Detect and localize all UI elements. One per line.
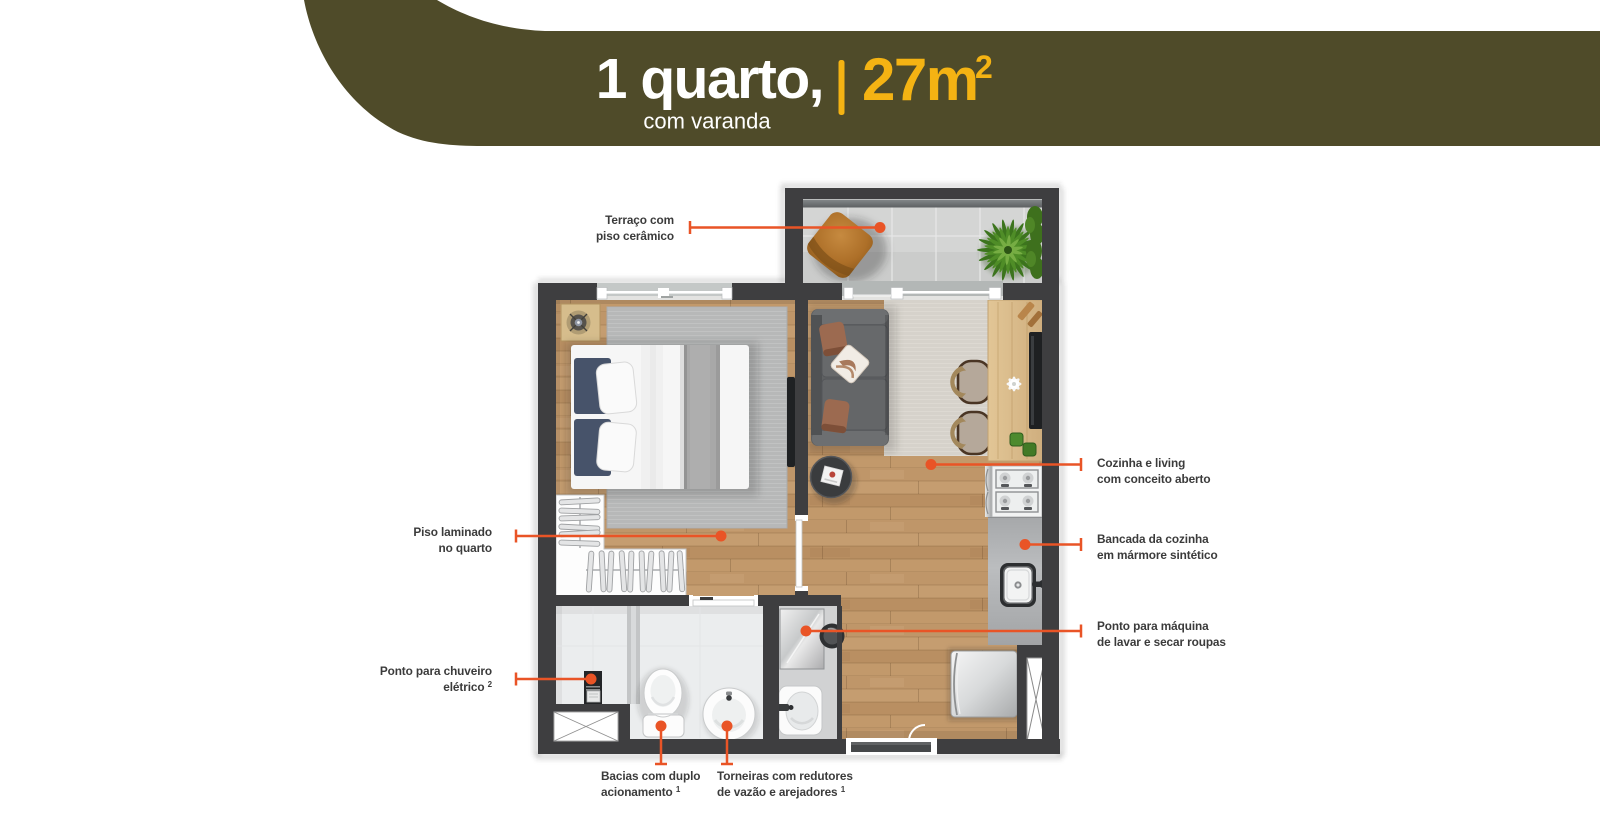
svg-text:Cozinha e living: Cozinha e living <box>1097 456 1185 470</box>
svg-text:Bacias com duplo: Bacias com duplo <box>601 769 700 783</box>
svg-text:elétrico 2: elétrico 2 <box>443 680 492 694</box>
svg-text:piso cerâmico: piso cerâmico <box>596 229 674 243</box>
svg-text:Ponto para máquina: Ponto para máquina <box>1097 619 1209 633</box>
svg-text:27m: 27m <box>862 46 978 113</box>
svg-text:Piso laminado: Piso laminado <box>413 525 492 539</box>
svg-text:1 quarto,: 1 quarto, <box>596 47 823 111</box>
svg-text:Torneiras com redutores: Torneiras com redutores <box>717 769 853 783</box>
svg-text:em mármore sintético: em mármore sintético <box>1097 548 1218 562</box>
svg-text:com conceito aberto: com conceito aberto <box>1097 472 1210 486</box>
svg-text:acionamento 1: acionamento 1 <box>601 785 681 799</box>
svg-text:com varanda: com varanda <box>643 109 771 134</box>
svg-text:no quarto: no quarto <box>439 541 493 555</box>
svg-text:de vazão e arejadores 1: de vazão e arejadores 1 <box>717 785 846 799</box>
svg-text:Ponto para chuveiro: Ponto para chuveiro <box>380 664 492 678</box>
svg-text:Bancada da cozinha: Bancada da cozinha <box>1097 532 1209 546</box>
svg-text:Terraço com: Terraço com <box>605 213 674 227</box>
svg-text:de lavar e secar roupas: de lavar e secar roupas <box>1097 635 1226 649</box>
svg-text:2: 2 <box>975 49 993 85</box>
